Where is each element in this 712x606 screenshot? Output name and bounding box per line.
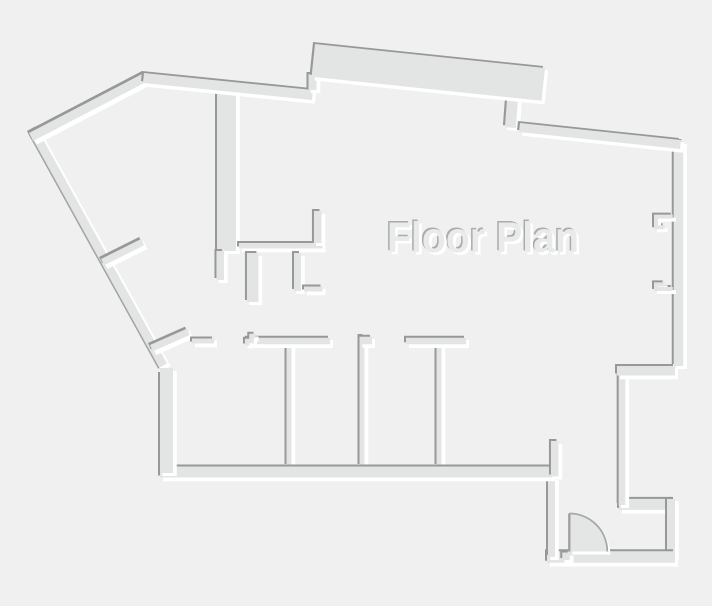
svg-text:Floor Plan: Floor Plan	[387, 215, 579, 262]
